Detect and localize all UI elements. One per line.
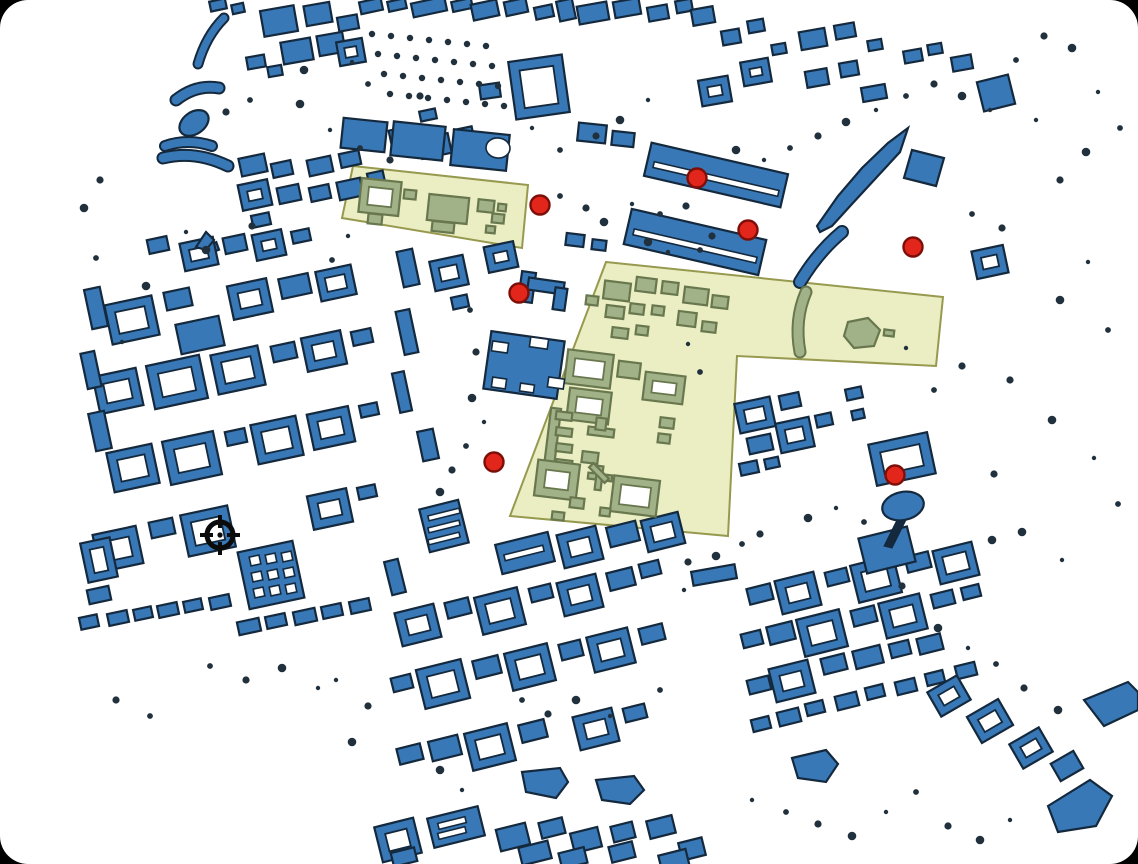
building-courtyard (238, 179, 273, 211)
building (658, 849, 690, 864)
building-courtyard (227, 278, 273, 320)
speck (976, 836, 985, 845)
building-courtyard (1009, 727, 1052, 768)
building (149, 518, 176, 539)
building (107, 610, 129, 626)
building (610, 822, 635, 843)
speck (582, 204, 589, 211)
building-courtyard (774, 572, 821, 615)
arc-building (165, 142, 212, 146)
speck (278, 664, 287, 673)
building (209, 0, 227, 12)
speck (448, 466, 455, 473)
building (504, 0, 528, 16)
building (691, 564, 737, 585)
speck (472, 348, 479, 355)
building (644, 143, 788, 208)
building (396, 249, 419, 288)
courtyard-hole (520, 66, 559, 108)
building (529, 584, 554, 603)
speck (787, 145, 793, 151)
building-courtyard (106, 444, 159, 493)
speck (1068, 44, 1077, 53)
building (903, 49, 923, 64)
building (916, 633, 943, 654)
zone-building (617, 361, 641, 380)
building (623, 704, 648, 723)
building-courtyard (504, 643, 556, 691)
zone-building (498, 204, 507, 212)
building (359, 402, 379, 417)
map-marker[interactable] (886, 466, 905, 485)
building-courtyard (971, 245, 1008, 279)
building (384, 559, 406, 595)
building (387, 0, 407, 12)
courtyard-hole (651, 381, 676, 396)
building (390, 121, 445, 160)
building-courtyard (146, 355, 208, 409)
speck (1040, 32, 1047, 39)
building (825, 568, 850, 587)
tree-dot (400, 73, 406, 79)
speck (930, 80, 937, 87)
tree-dot (394, 53, 400, 59)
speck (931, 387, 937, 393)
speck (644, 238, 653, 247)
map-marker[interactable] (485, 453, 504, 472)
zone-building-courtyard (534, 460, 580, 501)
speck (120, 340, 124, 344)
building (359, 0, 383, 14)
speck (834, 506, 838, 510)
tree-dot (432, 57, 438, 63)
building-courtyard (698, 76, 732, 107)
zone-building-courtyard (358, 178, 401, 216)
speck (207, 663, 213, 669)
courtyard-hole (325, 274, 347, 292)
zone-building (404, 189, 417, 199)
building (246, 55, 266, 70)
speck (334, 678, 338, 682)
building (608, 841, 635, 862)
building-polygon (596, 776, 644, 804)
speck (756, 530, 763, 537)
tree-dot (464, 41, 470, 47)
speck (697, 369, 703, 375)
building (175, 105, 214, 141)
speck (762, 158, 766, 162)
zone-building (661, 281, 678, 295)
zone-building (659, 417, 674, 429)
building (518, 719, 548, 743)
speck (750, 798, 754, 802)
speck (1020, 684, 1027, 691)
building (691, 6, 715, 26)
speck (686, 342, 690, 346)
tree-dot (426, 37, 432, 43)
speck (697, 247, 703, 253)
speck (969, 211, 975, 217)
building (303, 2, 332, 26)
building-courtyard (740, 58, 772, 86)
speck (993, 661, 999, 667)
building (260, 5, 298, 37)
zone-building (603, 280, 631, 301)
building (357, 484, 377, 499)
speck (666, 250, 670, 254)
building (163, 287, 192, 310)
speck (416, 92, 423, 99)
speck (1048, 416, 1057, 425)
building (351, 328, 373, 346)
speck (348, 738, 357, 747)
building (444, 597, 471, 618)
building (183, 598, 203, 613)
building-polygon (522, 768, 568, 798)
building (471, 0, 500, 21)
speck (708, 232, 715, 239)
building (646, 815, 676, 839)
building (606, 567, 636, 591)
speck (357, 145, 363, 151)
tree-dot (369, 31, 375, 37)
courtyard-hole (573, 358, 605, 380)
speck (1034, 118, 1038, 122)
speck (1105, 327, 1111, 333)
speck (966, 646, 970, 650)
map-marker[interactable] (904, 238, 923, 257)
building (553, 287, 568, 310)
building-courtyard (878, 593, 927, 638)
building-courtyard (162, 431, 222, 485)
map-marker[interactable] (531, 196, 550, 215)
map-marker[interactable] (510, 284, 529, 303)
courtyard-hole (317, 417, 344, 440)
zone-building (629, 303, 644, 315)
building (1051, 751, 1084, 781)
speck (600, 218, 609, 227)
building-detail (253, 587, 265, 598)
courtyard-hole (981, 254, 999, 269)
building-courtyard (556, 526, 603, 569)
speck (646, 98, 650, 102)
courtyard-hole (749, 67, 762, 77)
building (834, 22, 856, 39)
city-map[interactable] (0, 0, 1138, 864)
building (271, 160, 293, 178)
building (839, 61, 859, 78)
building (611, 131, 634, 147)
speck (904, 346, 908, 350)
building (639, 560, 662, 578)
speck (1006, 376, 1013, 383)
building-polygon (792, 750, 838, 782)
building (341, 118, 388, 152)
speck (958, 362, 965, 369)
speck (1082, 148, 1091, 157)
building (534, 4, 554, 19)
building (309, 184, 331, 202)
building (647, 4, 669, 21)
building (741, 630, 764, 648)
building (277, 184, 302, 204)
courtyard-hole (544, 470, 570, 491)
tree-dot (388, 33, 394, 39)
building-detail (249, 555, 261, 566)
tree-dot (445, 39, 451, 45)
tree-dot (457, 79, 463, 85)
speck (93, 255, 99, 261)
building-detail (491, 341, 508, 353)
zone-building (635, 277, 657, 293)
speck (248, 222, 255, 229)
lollipop-head (880, 488, 927, 524)
tree-dot (387, 91, 393, 97)
building (558, 847, 587, 864)
building (209, 594, 231, 610)
speck (557, 193, 563, 199)
speck (300, 66, 309, 75)
building-courtyard (734, 397, 775, 434)
speck (468, 394, 477, 403)
building (558, 640, 583, 661)
speck (365, 81, 371, 87)
building (889, 640, 912, 658)
building (577, 123, 607, 144)
tree-dot (483, 43, 489, 49)
building (419, 108, 437, 121)
building (428, 735, 462, 762)
zone-building (552, 511, 565, 520)
arc-building (800, 232, 842, 282)
zone-building (657, 433, 670, 443)
speck (712, 552, 721, 561)
courtyard-hole (117, 454, 149, 481)
zone-building (683, 287, 709, 306)
zone-building (432, 221, 455, 233)
speck (944, 822, 951, 829)
speck (1115, 501, 1121, 507)
speck (848, 832, 857, 841)
building-polygon (1084, 682, 1138, 726)
courtyard-hole (238, 289, 263, 309)
building-courtyard (796, 609, 848, 657)
building (747, 19, 765, 34)
speck (1056, 176, 1063, 183)
speck (988, 536, 997, 545)
building (427, 806, 485, 848)
building-courtyard (104, 295, 159, 344)
building (80, 351, 101, 389)
building (565, 233, 584, 247)
building-courtyard (252, 229, 287, 261)
zone-building (585, 295, 598, 305)
building (850, 605, 877, 626)
building (805, 700, 825, 716)
courtyard-hole (707, 85, 723, 97)
building-courtyard (315, 265, 356, 302)
speck (557, 147, 563, 153)
courtyard-hole (312, 341, 337, 361)
building (867, 39, 883, 51)
building-courtyard (586, 627, 635, 672)
speck (1092, 456, 1096, 460)
speck (958, 92, 967, 101)
building (349, 598, 371, 614)
building (927, 43, 943, 55)
building (865, 684, 885, 700)
building (271, 342, 298, 363)
map-marker[interactable] (688, 169, 707, 188)
speck (96, 176, 103, 183)
speck (804, 514, 813, 523)
speck (874, 108, 878, 112)
courtyard-hole (439, 264, 460, 281)
building-courtyard (301, 330, 347, 372)
building-courtyard (394, 604, 441, 647)
zone-building (368, 213, 383, 224)
speck (316, 686, 320, 690)
speck (608, 714, 612, 718)
building (238, 153, 267, 176)
speck (988, 108, 992, 112)
courtyard-hole (575, 396, 603, 415)
building-courtyard (307, 406, 356, 450)
building (961, 584, 981, 600)
zone-building (556, 427, 573, 437)
speck (222, 108, 229, 115)
zone-building (556, 443, 573, 453)
building-courtyard (572, 708, 619, 751)
building-polygon (1048, 780, 1112, 832)
speck (482, 420, 486, 424)
building (391, 674, 414, 692)
speck (898, 582, 905, 589)
building-courtyard (429, 255, 468, 291)
speck (682, 588, 686, 592)
speck (184, 230, 188, 234)
building-courtyard (210, 345, 265, 394)
tree-dot (381, 71, 387, 77)
building (721, 29, 741, 46)
building (777, 708, 802, 727)
courtyard-hole (247, 189, 263, 202)
tree-dot (406, 93, 412, 99)
building-detail (251, 571, 263, 582)
speck (202, 246, 211, 255)
zone-building (569, 497, 584, 509)
building (396, 743, 423, 764)
speck (329, 257, 335, 263)
building (472, 655, 502, 679)
building (764, 457, 780, 470)
zone-building (635, 325, 648, 335)
speck (80, 204, 89, 213)
speck (247, 97, 253, 103)
building-courtyard (556, 574, 603, 617)
building-detail (265, 553, 277, 564)
building (84, 287, 108, 329)
speck (572, 696, 581, 705)
speck (861, 519, 867, 525)
building (845, 386, 863, 400)
building (747, 676, 772, 695)
speck (1117, 125, 1123, 131)
building (278, 273, 312, 299)
building-courtyard (464, 723, 516, 771)
building-courtyard (932, 542, 979, 585)
speck (346, 234, 350, 238)
building-courtyard (484, 241, 519, 273)
courtyard-hole (103, 379, 133, 404)
building-detail (267, 569, 279, 580)
tree-dot (407, 35, 413, 41)
speck (1056, 296, 1065, 305)
speck (460, 788, 464, 792)
zone-building (701, 321, 716, 333)
zone-building-courtyard (564, 349, 614, 388)
building (451, 294, 469, 309)
map-marker[interactable] (739, 221, 758, 240)
tree-dot (444, 97, 450, 103)
speck (147, 713, 153, 719)
speck (386, 156, 393, 163)
building (638, 623, 665, 644)
courtyard-hole (493, 251, 509, 264)
tree-dot (470, 61, 476, 67)
building-courtyard (250, 416, 303, 465)
map-canvas (0, 0, 1138, 864)
building (766, 621, 796, 645)
speck (814, 820, 821, 827)
tree-dot (419, 75, 425, 81)
building (556, 0, 576, 21)
building (157, 602, 179, 618)
building-detail (547, 377, 564, 389)
building (293, 608, 317, 625)
speck (783, 809, 789, 815)
building (417, 429, 439, 462)
building-detail (520, 383, 535, 393)
building-detail (283, 567, 295, 578)
building-detail (281, 551, 293, 562)
courtyard-hole (344, 46, 358, 58)
speck (112, 696, 119, 703)
building (861, 84, 887, 102)
tree-dot (476, 81, 482, 87)
speck (592, 132, 599, 139)
tree-dot (375, 51, 381, 57)
speck (739, 541, 745, 547)
speck (657, 687, 663, 693)
zone-building (651, 305, 664, 315)
zone-building (556, 411, 573, 421)
speck (436, 488, 445, 497)
zone-building-courtyard (610, 475, 660, 516)
building (538, 817, 565, 838)
map-viewport[interactable] (0, 0, 1138, 864)
speck (903, 93, 909, 99)
zone-building (581, 451, 598, 464)
building (337, 14, 359, 31)
building (799, 28, 828, 50)
building (739, 460, 759, 475)
speck (732, 146, 741, 155)
speck (350, 60, 354, 64)
tree-dot (451, 59, 457, 65)
courtyard-hole (619, 484, 651, 508)
building (88, 411, 112, 451)
